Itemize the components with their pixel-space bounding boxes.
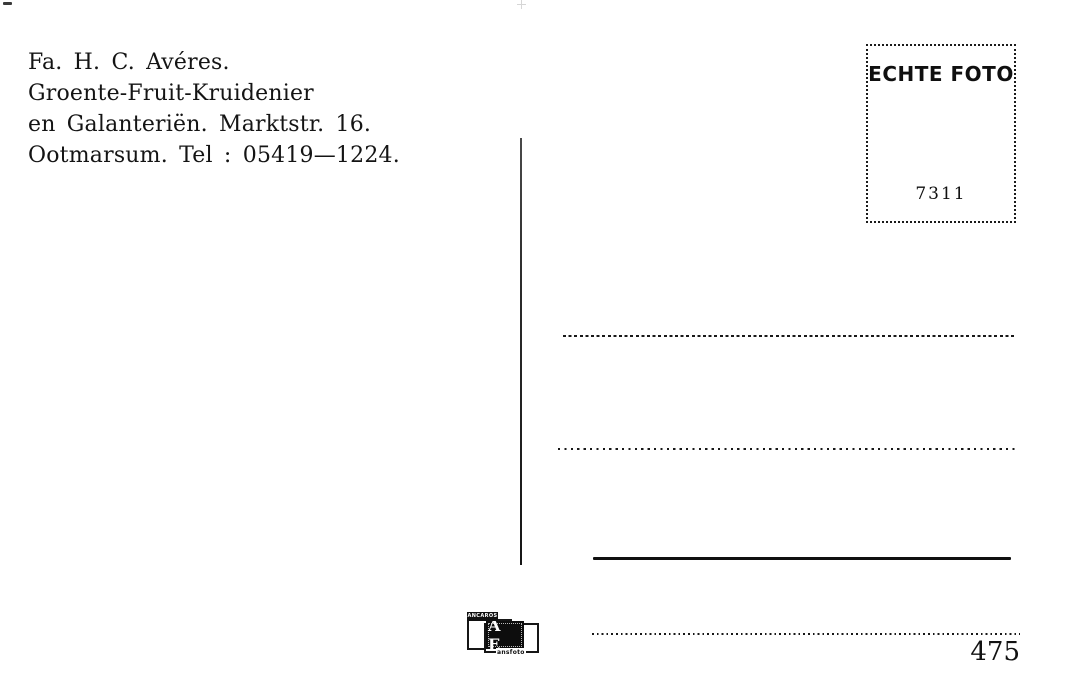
publisher-logo-monogram: A E <box>486 621 524 649</box>
publisher-line: Fa. H. C. Avéres. <box>28 47 400 78</box>
postcard-back: Fa. H. C. Avéres. Groente-Fruit-Kruideni… <box>0 0 1072 700</box>
address-line-solid <box>593 557 1011 560</box>
scan-artifact-dash <box>3 2 12 5</box>
publisher-imprint: Fa. H. C. Avéres. Groente-Fruit-Kruideni… <box>28 47 400 171</box>
publisher-line: Ootmarsum. Tel : 05419—1224. <box>28 140 400 171</box>
publisher-logo: A E ANCAROS ansfoto <box>465 610 547 662</box>
card-serial-number: 475 <box>958 637 1020 667</box>
publisher-line: en Galanteriën. Marktstr. 16. <box>28 109 400 140</box>
stamp-box: ECHTE FOTO 7311 <box>866 44 1016 223</box>
address-line-dotted <box>558 448 1018 450</box>
center-divider-line <box>520 138 522 565</box>
publisher-logo-top-text: ANCAROS <box>467 612 498 621</box>
registration-mark-icon <box>517 0 526 9</box>
address-line-dashed <box>563 335 1014 337</box>
publisher-logo-bottom-text: ansfoto <box>496 648 526 657</box>
stamp-box-label: ECHTE FOTO <box>868 62 1014 86</box>
stamp-box-number: 7311 <box>868 184 1014 204</box>
address-line-fine-dotted <box>592 633 1020 635</box>
publisher-line: Groente-Fruit-Kruidenier <box>28 78 400 109</box>
